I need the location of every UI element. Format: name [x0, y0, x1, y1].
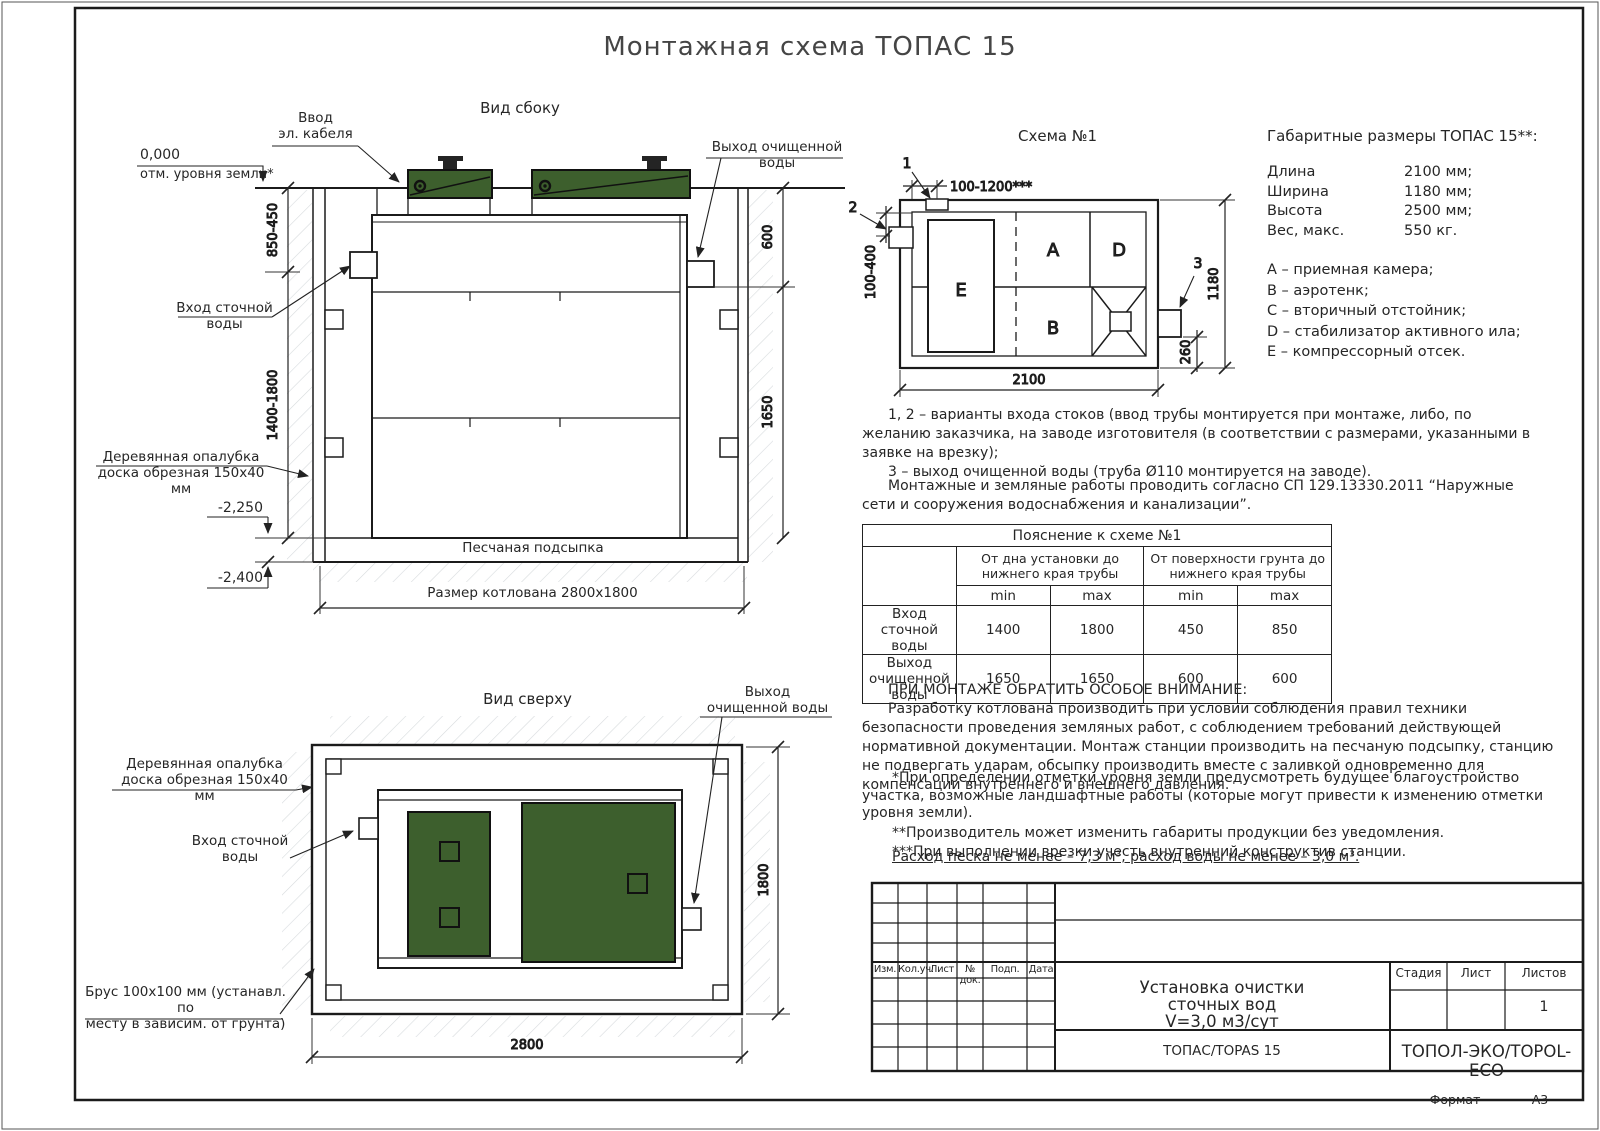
outlet-label-side: Выход очищенной воды — [708, 139, 846, 171]
tb-company-name: ТОПОЛ-ЭКО/TOPOL-ECO — [1392, 1042, 1581, 1080]
mark-1: 1 — [903, 156, 912, 172]
compartment-b: B — [1047, 318, 1059, 339]
inlet-label-top: Вход сточной воды — [185, 833, 295, 865]
footnote-2: **Производитель может изменить габариты … — [862, 825, 1554, 843]
tb-product-name: ТОПАС/TOPAS 15 — [1057, 1043, 1387, 1059]
dim-100-400: 100-400 — [864, 245, 879, 299]
col-min2: min — [1144, 586, 1238, 606]
tb-col-koluch: Кол.уч. — [898, 964, 927, 975]
dim-row-label: Вес, макс. — [1267, 223, 1404, 243]
tb-col-list: Лист — [927, 964, 957, 975]
note-variants-12: 1, 2 – варианты входа стоков (ввод трубы… — [862, 406, 1542, 463]
doc-title-line1: Установка очистки — [1057, 979, 1387, 996]
footnote-1: *При определении отметки уровня земли пр… — [862, 770, 1554, 823]
table-group2-header: От поверхности грунта до нижнего края тр… — [1144, 547, 1332, 586]
tb-col-podp: Подп. — [983, 964, 1027, 975]
outlet-label-top: Выход очищенной воды — [705, 684, 830, 716]
scheme-heading: Схема №1 — [1010, 128, 1105, 144]
inlet-label-side: Вход сточной воды — [172, 300, 277, 332]
legend-item: В – аэротенк; — [1267, 283, 1567, 304]
compartment-d: D — [1112, 240, 1126, 261]
explanation-table: Пояснение к схеме №1 От дна установки до… — [862, 524, 1332, 704]
lid-covers-side — [408, 156, 690, 198]
overall-dims-list: Длина2100 мм; Ширина1180 мм; Высота2500 … — [1267, 164, 1547, 242]
legend-item: А – приемная камера; — [1267, 262, 1567, 283]
cable-entry-label: Ввод эл. кабеля — [268, 110, 363, 142]
row-inlet-min1: 1400 — [956, 606, 1050, 655]
row-inlet-label: Вход сточной воды — [863, 606, 957, 655]
works-note: Монтажные и земляные работы проводить со… — [862, 477, 1542, 515]
dim-row-value: 2500 мм; — [1404, 203, 1472, 223]
tb-col-data: Дата — [1027, 964, 1055, 975]
tb-sheets-label: Листов — [1505, 966, 1583, 980]
dim-row-label: Ширина — [1267, 184, 1404, 204]
row-inlet-max2: 850 — [1238, 606, 1332, 655]
tb-sheet-label: Лист — [1447, 966, 1505, 980]
compartment-legend: А – приемная камера; В – аэротенк; С – в… — [1267, 262, 1567, 365]
dim-1800: 1800 — [757, 863, 772, 896]
table-title: Пояснение к схеме №1 — [863, 525, 1332, 547]
row-inlet-max1: 1800 — [1050, 606, 1144, 655]
col-max2: max — [1238, 586, 1332, 606]
side-view-heading: Вид сбоку — [455, 100, 585, 116]
tb-sheets-value: 1 — [1505, 999, 1583, 1015]
pit-size-label: Размер котлована 2800х1800 — [425, 585, 640, 601]
row-inlet-min2: 450 — [1144, 606, 1238, 655]
lid-covers-top — [408, 803, 675, 962]
dim-260: 260 — [1179, 340, 1194, 365]
legend-item: D – стабилизатор активного ила; — [1267, 324, 1567, 345]
level-2400-label: -2,400 — [205, 570, 263, 586]
compartment-a: A — [1047, 240, 1060, 261]
scheme1-drawing: A B D E 1 2 3 100-1200*** 100-400 2100 1… — [849, 156, 1235, 397]
mark-3: 3 — [1194, 256, 1203, 272]
dim-row-label: Высота — [1267, 203, 1404, 223]
dim-row-value: 1180 мм; — [1404, 184, 1472, 204]
legend-item: С – вторичный отстойник; — [1267, 303, 1567, 324]
variant-notes: 1, 2 – варианты входа стоков (ввод трубы… — [862, 406, 1542, 482]
consumption-note: Расход песка не менее – 7,3 м³, расход в… — [862, 849, 1359, 865]
sand-bed-label: Песчаная подсыпка — [458, 540, 608, 556]
tb-stage-label: Стадия — [1390, 966, 1447, 980]
dim-600: 600 — [761, 225, 776, 250]
doc-title-line2: сточных вод — [1057, 996, 1387, 1013]
format-label: Формат — [1415, 1092, 1495, 1107]
consumption-text: Расход песка не менее – 7,3 м³, расход в… — [892, 849, 1359, 865]
dim-2100: 2100 — [1012, 373, 1045, 388]
drawing-sheet: 850-450 1400-1800 600 1650 — [0, 0, 1600, 1131]
dim-850-450: 850-450 — [266, 203, 281, 257]
formwork-label-top: Деревянная опалубка доска обрезная 150х4… — [112, 756, 297, 804]
zero-mark-label: отм. уровня земли* — [140, 167, 275, 183]
tb-col-izm: Изм. — [872, 964, 898, 975]
top-view-heading: Вид сверху — [465, 691, 590, 707]
dim-1650: 1650 — [761, 395, 776, 428]
dim-row-label: Длина — [1267, 164, 1404, 184]
dim-100-1200: 100-1200*** — [950, 180, 1033, 195]
dim-row-value: 550 кг. — [1404, 223, 1457, 243]
level-2250-label: -2,250 — [205, 500, 263, 516]
col-min1: min — [956, 586, 1050, 606]
dim-row-value: 2100 мм; — [1404, 164, 1472, 184]
table-corner-cell — [863, 547, 957, 606]
dim-1180: 1180 — [1207, 267, 1222, 300]
note-works: Монтажные и земляные работы проводить со… — [862, 477, 1542, 515]
tb-col-ndok: № док. — [957, 964, 983, 986]
doc-title-line3: V=3,0 м3/сут — [1057, 1013, 1387, 1030]
document-title: Установка очистки сточных вод V=3,0 м3/с… — [1057, 979, 1387, 1030]
dim-2800: 2800 — [510, 1038, 543, 1053]
attention-heading: ПРИ МОНТАЖЕ ОБРАТИТЬ ОСОБОЕ ВНИМАНИЕ: — [862, 681, 1554, 700]
table-group1-header: От дна установки до нижнего края трубы — [956, 547, 1144, 586]
beam-label: Брус 100х100 мм (устанавл. по месту в за… — [83, 984, 288, 1032]
mark-2: 2 — [849, 200, 858, 216]
col-max1: max — [1050, 586, 1144, 606]
format-value: А3 — [1510, 1092, 1570, 1107]
overall-dims-heading: Габаритные размеры ТОПАС 15**: — [1267, 127, 1538, 145]
compartment-e: E — [955, 280, 966, 301]
legend-item: Е – компрессорный отсек. — [1267, 344, 1567, 365]
formwork-label-side: Деревянная опалубка доска обрезная 150х4… — [92, 449, 270, 497]
dim-1400-1800: 1400-1800 — [266, 370, 281, 441]
zero-mark-value: 0,000 — [140, 147, 210, 163]
page-title: Монтажная схема ТОПАС 15 — [410, 32, 1210, 62]
